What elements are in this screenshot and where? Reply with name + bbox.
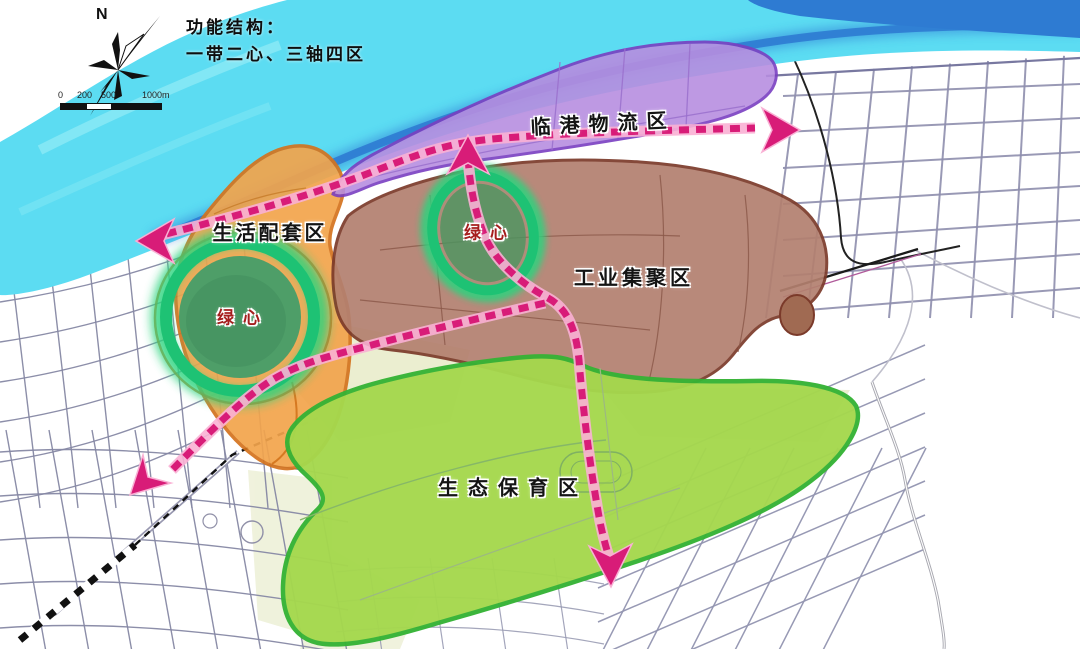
- north-label: N: [96, 6, 108, 24]
- map-title-line1: 功能结构：: [186, 16, 366, 40]
- scale-tick-200: 200: [77, 90, 92, 100]
- zone-label-living: 生活配套区: [213, 217, 328, 246]
- scale-bar: 0 200 500 1000m: [58, 90, 168, 114]
- green-heart-label-1: 绿心: [217, 304, 269, 329]
- zone-label-industry: 工业集聚区: [574, 262, 694, 291]
- scale-end-label: 1000m: [142, 90, 170, 100]
- map-title: 功能结构： 一带二心、三轴四区: [186, 16, 366, 67]
- zone-label-ecology: 生态保育区: [438, 472, 588, 501]
- planning-map: N 功能结构： 一带二心、三轴四区 0 200 500 1000m 临港物流区 …: [0, 0, 1080, 649]
- industrial-ring-feature: [780, 295, 814, 335]
- scale-tick-0: 0: [58, 90, 63, 100]
- scale-tick-500: 500: [101, 90, 116, 100]
- green-heart-label-2: 绿心: [464, 219, 516, 244]
- scale-bar-segments: [60, 103, 162, 110]
- arrow-right-icon: [762, 108, 800, 152]
- map-title-line2: 一带二心、三轴四区: [186, 43, 366, 67]
